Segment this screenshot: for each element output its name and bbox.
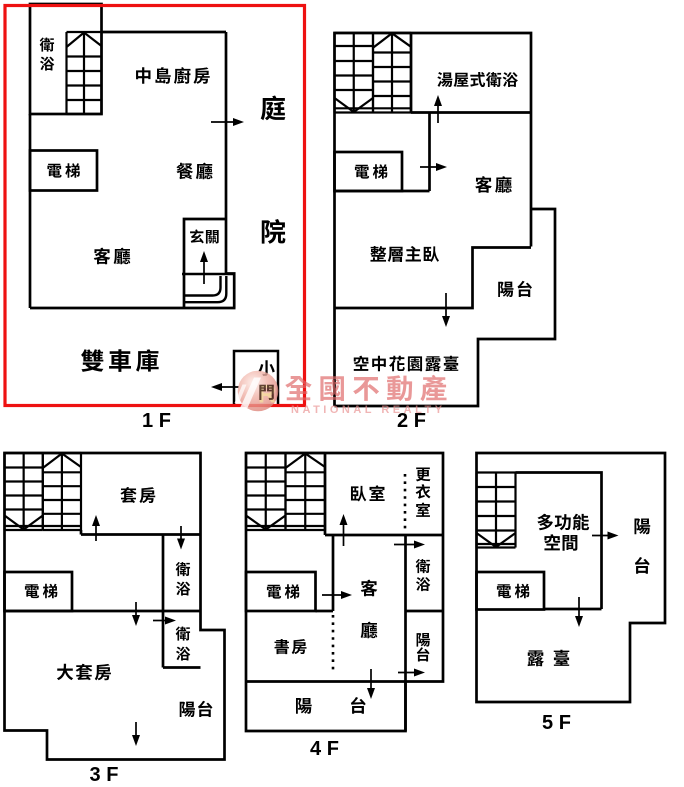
svg-text:3 F: 3 F [90,764,119,786]
svg-text:5 F: 5 F [542,712,571,734]
svg-text:1 F: 1 F [142,410,171,432]
svg-text:NATIONAL REALTY: NATIONAL REALTY [291,404,446,416]
svg-text:4 F: 4 F [310,738,339,760]
